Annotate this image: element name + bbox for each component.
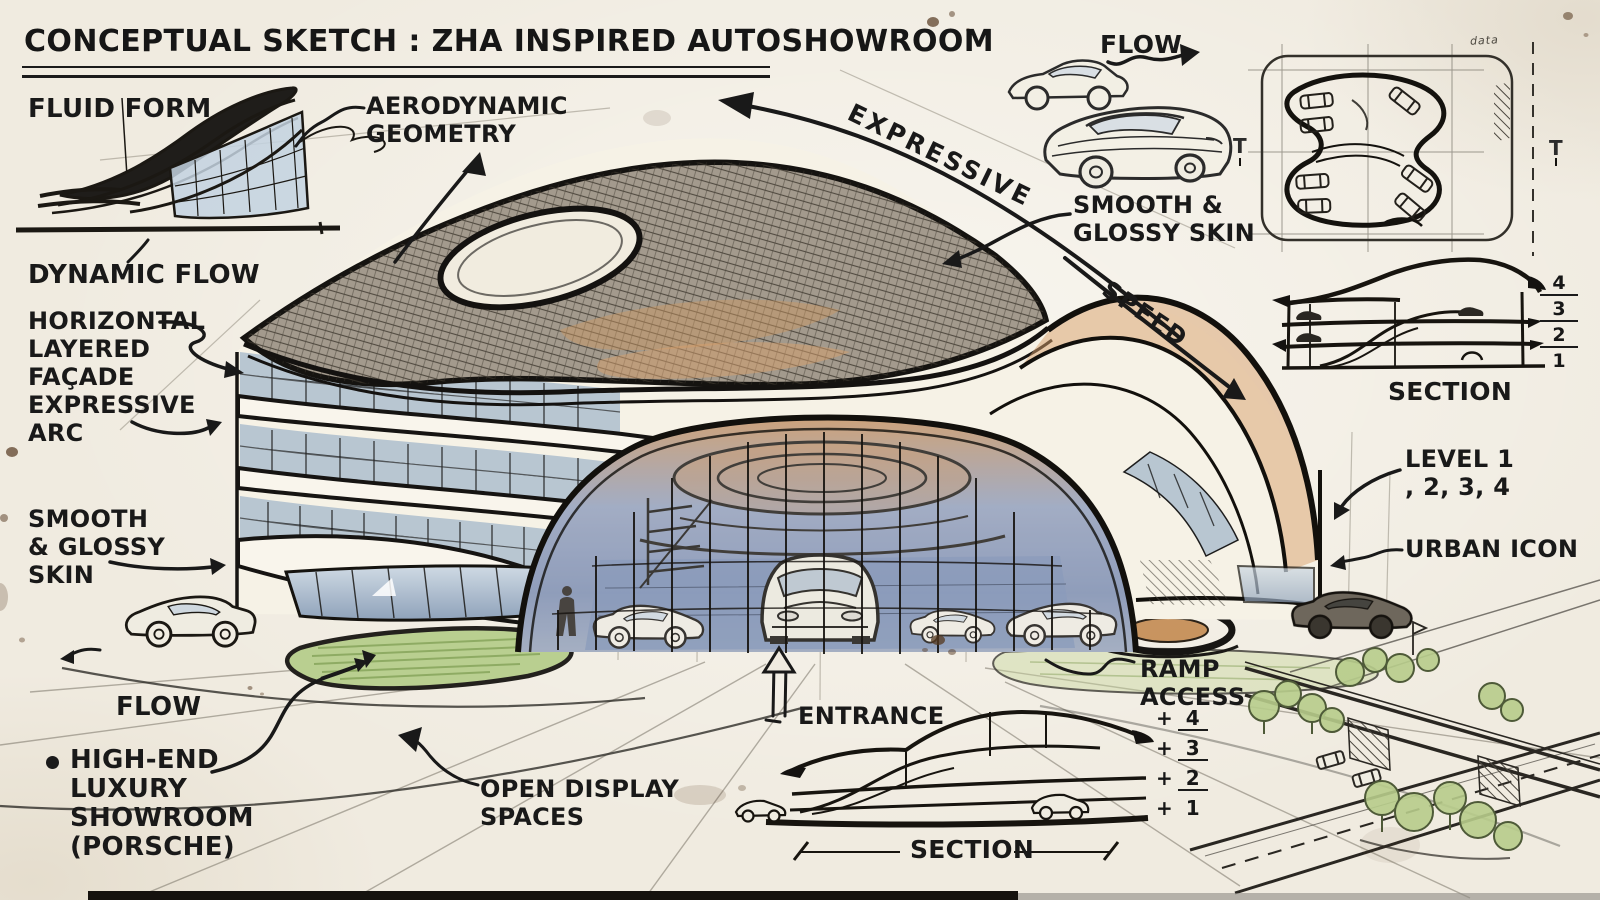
urban-icon-leader [1330, 550, 1402, 570]
label-urban-icon: URBAN ICON [1405, 536, 1578, 564]
bottom-section-cars [736, 795, 1088, 822]
label-dynamic-flow: DYNAMIC FLOW [28, 260, 260, 290]
dynamic-flow-leader [128, 240, 148, 262]
plus-sign: + [1156, 798, 1173, 818]
car-sketch-large [1045, 108, 1231, 187]
bottom-section-levels: +4 +3 +2 +1 [1156, 708, 1208, 826]
right-section-levels: 4 3 2 1 [1540, 272, 1578, 374]
plus-sign: + [1156, 738, 1173, 758]
level-number: 3 [1540, 298, 1578, 322]
car-sketch-small [1009, 61, 1128, 109]
open-display-leader [398, 727, 478, 785]
plan-view-sketch [1240, 42, 1556, 256]
level-number: 1 [1540, 350, 1578, 372]
label-fluid-form: FLUID FORM [28, 94, 212, 124]
label-entrance: ENTRANCE [798, 703, 944, 731]
level-number: 4 [1178, 708, 1208, 731]
label-smooth-glossy-skin-left: SMOOTH & GLOSSY SKIN [28, 506, 165, 589]
label-high-end-luxury: HIGH-END LUXURY SHOWROOM (PORSCHE) [70, 746, 254, 862]
bullet-point [46, 756, 59, 769]
t-marker-left: T [1233, 134, 1247, 158]
label-level-1234: LEVEL 1 , 2, 3, 4 [1405, 446, 1514, 502]
label-horizontal-layered-facade: HORIZONTAL LAYERED FAÇADE [28, 308, 205, 391]
t-marker-right: T [1549, 136, 1563, 160]
label-smooth-glossy-skin-right: SMOOTH & GLOSSY SKIN [1073, 192, 1255, 248]
label-expressive-arc: EXPRESSIVE ARC [28, 392, 196, 448]
label-section-right: SECTION [1388, 377, 1512, 406]
label-aerodynamic-geometry: AERODYNAMIC GEOMETRY [366, 93, 568, 149]
page-title: CONCEPTUAL SKETCH : ZHA INSPIRED AUTOSHO… [24, 24, 994, 59]
label-open-display-spaces: OPEN DISPLAY SPACES [480, 776, 679, 832]
right-section-sketch [1272, 260, 1546, 368]
plus-sign: + [1156, 768, 1173, 788]
label-ramp-access: RAMP ACCESS [1140, 656, 1246, 712]
label-flow-right: FLOW [1100, 30, 1182, 59]
title-underline [22, 66, 770, 78]
photo-edge-light [1018, 893, 1600, 900]
level-number: 3 [1178, 738, 1208, 761]
plus-sign: + [1156, 708, 1173, 728]
level-number: 2 [1540, 324, 1578, 348]
level-number: 4 [1540, 272, 1578, 296]
plan-scribble: data [1470, 33, 1499, 47]
photo-edge-dark [88, 891, 1018, 900]
label-flow-left: FLOW [116, 692, 201, 722]
level-number: 2 [1178, 768, 1208, 791]
label-section-bottom: SECTION [910, 835, 1034, 864]
level-number: 1 [1178, 798, 1208, 819]
